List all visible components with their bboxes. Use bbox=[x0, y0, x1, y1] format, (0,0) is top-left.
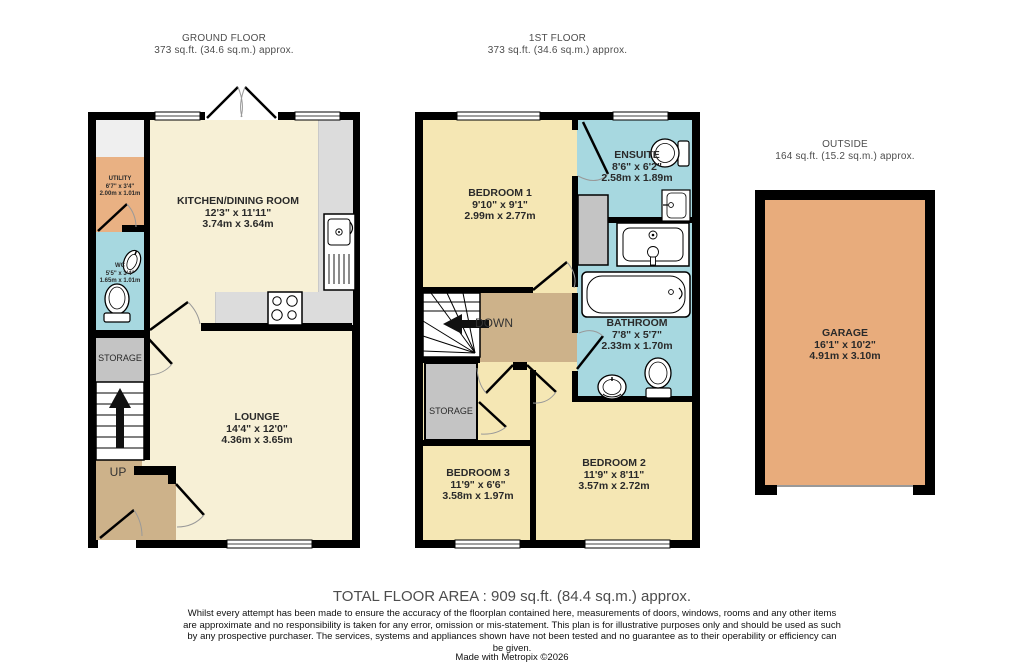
door-arc bbox=[533, 262, 575, 290]
room-wc-label: WC 5'5" x 3'4" 1.65m x 1.01m bbox=[90, 263, 150, 286]
credit-text: Made with Metropix ©2026 bbox=[0, 652, 1024, 663]
room-storage-ff-label: STORAGE bbox=[425, 406, 477, 418]
hob-icon bbox=[268, 292, 302, 325]
french-doors bbox=[205, 87, 278, 120]
toilet-icon bbox=[104, 284, 130, 322]
room-ensuite-label: ENSUITE 8'6" x 6'2" 2.58m x 1.89m bbox=[579, 150, 695, 185]
garage-wall-stub bbox=[765, 485, 777, 495]
garage-door-opening bbox=[777, 485, 913, 495]
first-floor-area: 373 sq.ft. (34.6 sq.m.) approx. bbox=[415, 45, 700, 57]
room-bedroom1-label: BEDROOM 1 9'10" x 9'1" 2.99m x 2.77m bbox=[425, 188, 575, 223]
bath-icon bbox=[582, 272, 690, 317]
ground-floor-title: GROUND FLOOR bbox=[88, 33, 360, 45]
window bbox=[457, 112, 540, 120]
ground-floor-plan: UTILITY 6'7" x 3'4" 2.00m x 1.01m WC 5'5… bbox=[88, 112, 360, 548]
total-floor-area: TOTAL FLOOR AREA : 909 sq.ft. (84.4 sq.m… bbox=[0, 588, 1024, 605]
room-bathroom-label: BATHROOM 7'8" x 5'7" 2.33m x 1.70m bbox=[579, 318, 695, 353]
vanity-sink-icon bbox=[617, 223, 689, 266]
doors bbox=[98, 204, 204, 538]
door-arc bbox=[100, 510, 142, 538]
disclaimer-text: Whilst every attempt has been made to en… bbox=[182, 608, 842, 654]
up-label: UP bbox=[100, 465, 136, 479]
window bbox=[227, 540, 312, 548]
room-bedroom2-label: BEDROOM 2 11'9" x 8'11" 3.57m x 2.72m bbox=[539, 458, 689, 493]
outside-header: OUTSIDE 164 sq.ft. (15.2 sq.m.) approx. bbox=[745, 139, 945, 162]
outside-title: OUTSIDE bbox=[745, 139, 945, 151]
ground-floor-area: 373 sq.ft. (34.6 sq.m.) approx. bbox=[88, 45, 360, 57]
room-garage-label: GARAGE 16'1" x 10'2" 4.91m x 3.10m bbox=[765, 328, 925, 363]
room-storage-ff bbox=[425, 363, 477, 440]
window bbox=[455, 540, 520, 548]
door-arc bbox=[150, 302, 200, 330]
wall-sink-icon bbox=[662, 190, 690, 221]
floorplan-canvas: GROUND FLOOR 373 sq.ft. (34.6 sq.m.) app… bbox=[0, 0, 1024, 665]
cupboard bbox=[578, 195, 608, 265]
front-door-opening bbox=[98, 540, 136, 548]
toilet-icon bbox=[645, 358, 671, 398]
garage-plan: GARAGE 16'1" x 10'2" 4.91m x 3.10m bbox=[755, 190, 935, 495]
door-arc bbox=[176, 484, 204, 527]
room-lounge-label: LOUNGE 14'4" x 12'0" 4.36m x 3.65m bbox=[155, 412, 359, 447]
door-arc bbox=[479, 402, 506, 434]
window bbox=[613, 112, 668, 120]
pedestal-sink-icon bbox=[598, 375, 626, 399]
room-kitchen-label: KITCHEN/DINING ROOM 12'3" x 11'11" 3.74m… bbox=[136, 196, 340, 231]
down-label: DOWN bbox=[475, 316, 521, 330]
window bbox=[155, 112, 200, 120]
first-floor-title: 1ST FLOOR bbox=[415, 33, 700, 45]
door-arc bbox=[477, 365, 513, 393]
ground-floor-header: GROUND FLOOR 373 sq.ft. (34.6 sq.m.) app… bbox=[88, 33, 360, 56]
room-storage-gf-label: STORAGE bbox=[92, 353, 148, 365]
window bbox=[585, 540, 670, 548]
garage-wall-stub bbox=[913, 485, 925, 495]
stairs-up bbox=[96, 382, 144, 460]
outside-area: 164 sq.ft. (15.2 sq.m.) approx. bbox=[745, 151, 945, 163]
room-bedroom3-label: BEDROOM 3 11'9" x 6'6" 3.58m x 1.97m bbox=[423, 468, 533, 503]
first-floor-header: 1ST FLOOR 373 sq.ft. (34.6 sq.m.) approx… bbox=[415, 33, 700, 56]
first-floor-plan: BEDROOM 1 9'10" x 9'1" 2.99m x 2.77m ENS… bbox=[415, 112, 700, 548]
window bbox=[295, 112, 340, 120]
